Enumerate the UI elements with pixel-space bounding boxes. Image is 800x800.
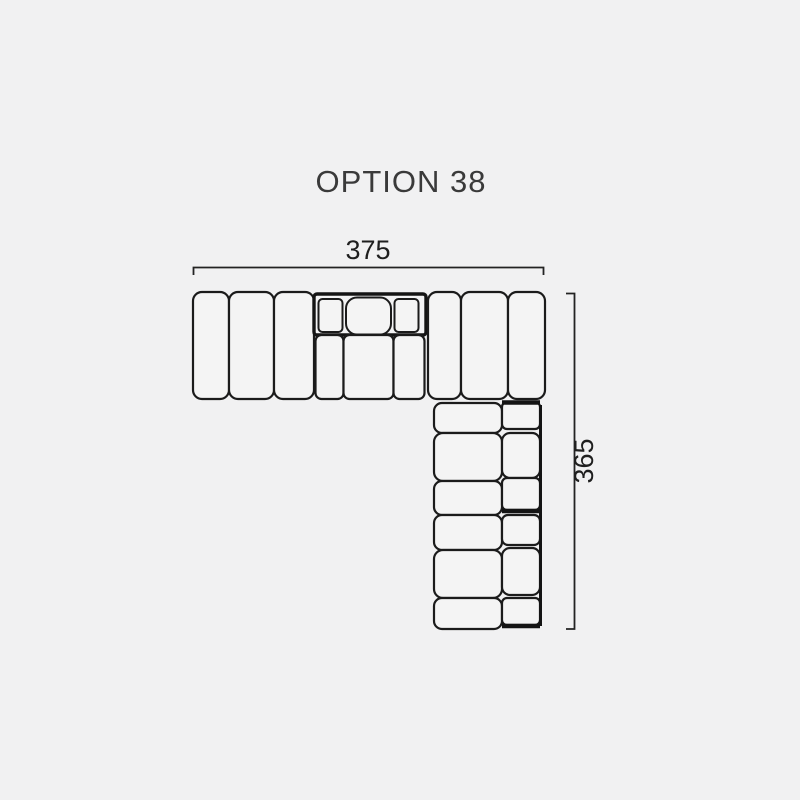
page-title: OPTION 38 <box>316 164 487 199</box>
back-cushion <box>502 548 540 595</box>
width-dimension-label: 375 <box>345 235 390 265</box>
back-cushion <box>319 299 343 332</box>
sofa-middle-module <box>314 294 426 399</box>
seat-cushion <box>316 335 344 399</box>
sofa-module <box>461 292 508 399</box>
back-cushion <box>346 298 391 335</box>
back-cushion <box>395 299 419 332</box>
sofa-module <box>193 292 229 399</box>
back-cushion <box>502 402 540 429</box>
sofa-module <box>434 433 502 481</box>
sofa-module <box>229 292 274 399</box>
sofa-module <box>434 550 502 598</box>
seat-cushion <box>344 335 394 399</box>
horizontal-sofa-section <box>193 292 545 399</box>
sofa-module <box>508 292 545 399</box>
back-cushion <box>502 515 540 545</box>
sofa-module <box>434 403 502 433</box>
sofa-module <box>274 292 314 399</box>
sofa-module <box>434 481 502 515</box>
page: OPTION 38 375 365 <box>0 0 800 800</box>
width-dimension: 375 <box>194 235 544 275</box>
seat-cushion <box>394 335 425 399</box>
back-cushion <box>502 478 540 510</box>
back-cushion <box>502 433 540 478</box>
height-dimension-label: 365 <box>569 438 599 483</box>
vertical-sofa-section <box>434 402 541 629</box>
height-dimension: 365 <box>566 294 599 630</box>
sofa-module <box>434 598 502 629</box>
sofa-plan-diagram: OPTION 38 375 365 <box>0 0 800 800</box>
width-dimension-line <box>194 268 544 276</box>
back-cushion <box>502 598 540 625</box>
sofa-module <box>428 292 461 399</box>
sofa-module <box>434 515 502 550</box>
